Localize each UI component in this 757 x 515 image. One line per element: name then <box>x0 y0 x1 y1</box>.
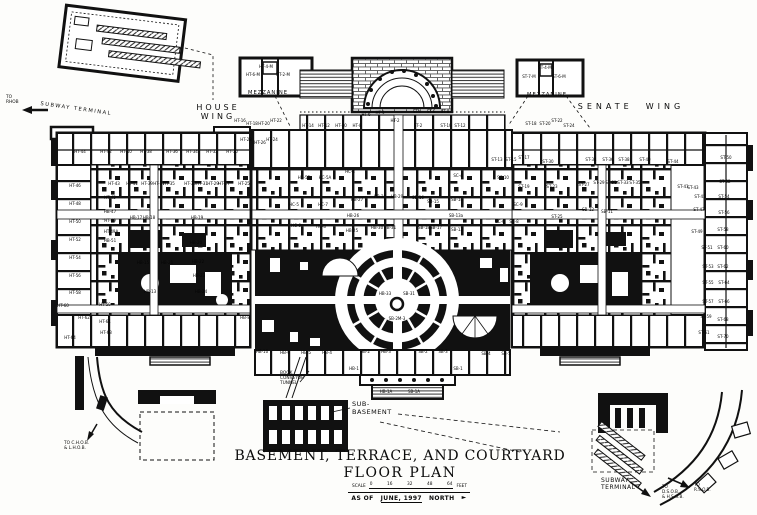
north-label: NORTH <box>429 495 455 503</box>
scale-ticks: 016324864 <box>369 482 454 489</box>
scale-tick: 48 <box>427 482 432 487</box>
to-rhob-arrow <box>22 106 48 114</box>
plan-title-line2: FLOOR PLAN <box>228 465 572 481</box>
senate-wing <box>512 133 753 433</box>
title-block: BASEMENT, TERRACE, AND COURTYARD FLOOR P… <box>228 448 572 481</box>
scale-tick: 0 <box>370 482 373 487</box>
rotunda <box>255 240 510 360</box>
north-arrow-icon: ► <box>462 495 467 503</box>
as-of-label: AS OF <box>351 495 373 503</box>
scale-bar: SCALE 016324864 FEET <box>352 482 467 489</box>
scale-tick: 64 <box>447 482 452 487</box>
scale-label: SCALE <box>352 484 366 489</box>
nw-subway-terminal <box>59 5 206 84</box>
mezzanine-right-inset <box>508 60 590 128</box>
floor-plan-drawing <box>0 0 757 515</box>
as-of-date: JUNE, 1997 <box>381 495 422 503</box>
floor-plan-sheet: HT-44HT-42HT-40HT-38HT-36HT-34HT-32HT-30… <box>0 0 757 515</box>
apse <box>300 58 505 112</box>
plan-title-line1: BASEMENT, TERRACE, AND COURTYARD <box>228 448 572 464</box>
scale-tick: 32 <box>407 482 412 487</box>
sw-ramp <box>87 357 142 443</box>
house-wing <box>51 127 250 410</box>
center-block <box>252 58 512 399</box>
scale-tick: 16 <box>387 482 392 487</box>
scale-unit: FEET <box>456 484 467 489</box>
courtyard-dashed-outline <box>140 412 214 460</box>
date-line: AS OF JUNE, 1997 NORTH ► <box>348 492 470 503</box>
